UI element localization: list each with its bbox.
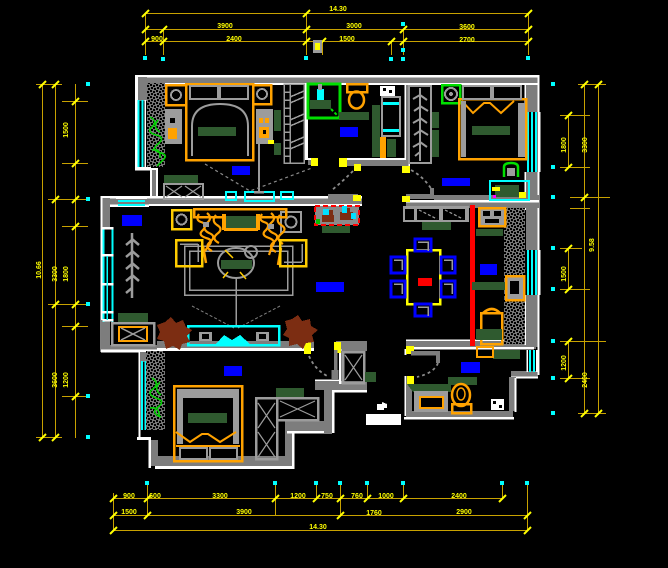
svg-text:2400: 2400 — [582, 372, 589, 388]
svg-text:900: 900 — [151, 36, 163, 43]
svg-text:2700: 2700 — [459, 37, 475, 44]
svg-text:3600: 3600 — [459, 24, 475, 31]
svg-text:1200: 1200 — [63, 372, 70, 388]
svg-text:2900: 2900 — [456, 509, 472, 516]
svg-text:1000: 1000 — [378, 493, 394, 500]
svg-text:750: 750 — [321, 493, 333, 500]
svg-text:3000: 3000 — [346, 23, 362, 30]
svg-text:3600: 3600 — [52, 372, 59, 388]
svg-text:1500: 1500 — [339, 36, 355, 43]
svg-text:760: 760 — [351, 493, 363, 500]
svg-text:2400: 2400 — [226, 36, 242, 43]
svg-text:1500: 1500 — [63, 122, 70, 138]
svg-text:2400: 2400 — [451, 493, 467, 500]
svg-text:14.30: 14.30 — [309, 524, 327, 531]
svg-text:3900: 3900 — [236, 509, 252, 516]
svg-text:10.66: 10.66 — [36, 261, 43, 279]
svg-text:3300: 3300 — [52, 266, 59, 282]
svg-text:1800: 1800 — [63, 266, 70, 282]
svg-text:3900: 3900 — [217, 23, 233, 30]
svg-text:1200: 1200 — [290, 493, 306, 500]
svg-text:900: 900 — [123, 493, 135, 500]
svg-text:600: 600 — [149, 493, 161, 500]
svg-text:1500: 1500 — [561, 266, 568, 282]
svg-text:1500: 1500 — [121, 509, 137, 516]
svg-text:3300: 3300 — [582, 137, 589, 153]
svg-text:1760: 1760 — [366, 510, 382, 517]
svg-text:3300: 3300 — [212, 493, 228, 500]
svg-text:9.58: 9.58 — [589, 238, 596, 252]
svg-text:14.30: 14.30 — [329, 6, 347, 13]
svg-text:1200: 1200 — [561, 355, 568, 371]
svg-text:1800: 1800 — [561, 137, 568, 153]
